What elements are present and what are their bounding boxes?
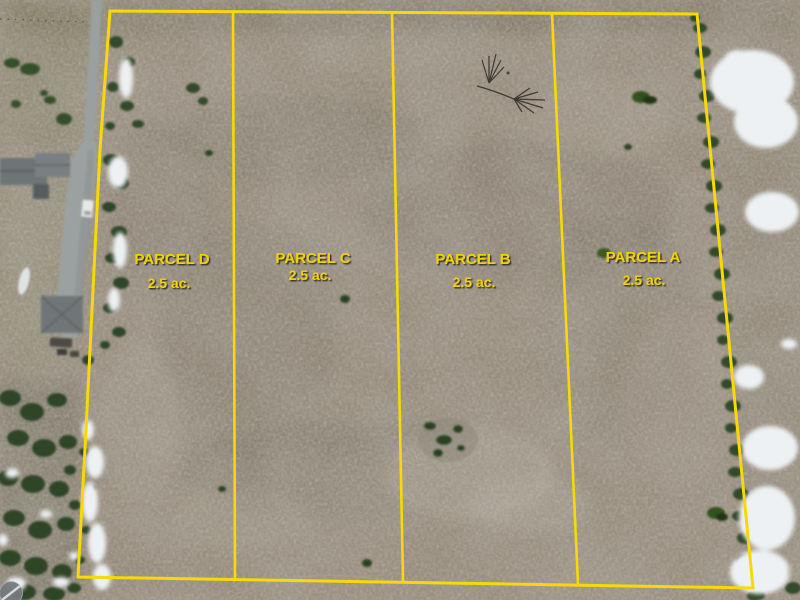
parcel-d-acreage: 2.5 ac.	[148, 275, 191, 291]
parcel-c-acreage: 2.5 ac.	[289, 267, 332, 283]
parked-car	[57, 349, 67, 355]
drone-photo-watermark-icon	[0, 582, 23, 600]
aerial-parcel-photo: PARCEL D 2.5 ac. PARCEL C 2.5 ac. PARCEL…	[0, 0, 800, 600]
parcel-b-acreage: 2.5 ac.	[453, 274, 496, 290]
parcel-a-acreage: 2.5 ac.	[623, 272, 666, 288]
parcel-d-name: PARCEL D	[134, 251, 209, 268]
trailer	[50, 337, 73, 348]
parked-car	[70, 351, 79, 357]
parcel-a-name: PARCEL A	[606, 249, 681, 266]
parcel-c-name: PARCEL C	[275, 250, 350, 267]
parcel-b-name: PARCEL B	[435, 251, 510, 268]
aerial-scene: PARCEL D 2.5 ac. PARCEL C 2.5 ac. PARCEL…	[0, 0, 800, 600]
